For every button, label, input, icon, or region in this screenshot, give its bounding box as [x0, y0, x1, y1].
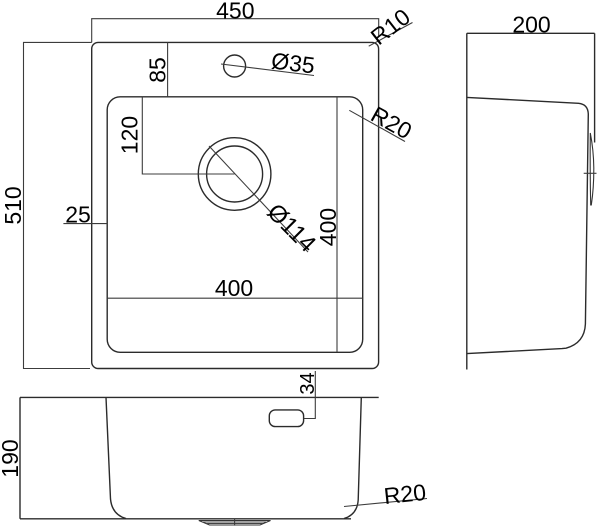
- svg-text:400: 400: [315, 208, 341, 246]
- svg-text:510: 510: [0, 186, 26, 224]
- svg-text:400: 400: [215, 275, 253, 301]
- svg-text:Ø35: Ø35: [270, 47, 316, 78]
- svg-text:85: 85: [145, 57, 171, 83]
- svg-text:120: 120: [117, 116, 143, 154]
- svg-text:450: 450: [216, 0, 254, 24]
- svg-text:34: 34: [297, 372, 319, 394]
- svg-text:R20: R20: [383, 479, 428, 509]
- svg-text:190: 190: [0, 439, 23, 477]
- svg-text:200: 200: [512, 12, 550, 38]
- svg-text:25: 25: [65, 202, 91, 228]
